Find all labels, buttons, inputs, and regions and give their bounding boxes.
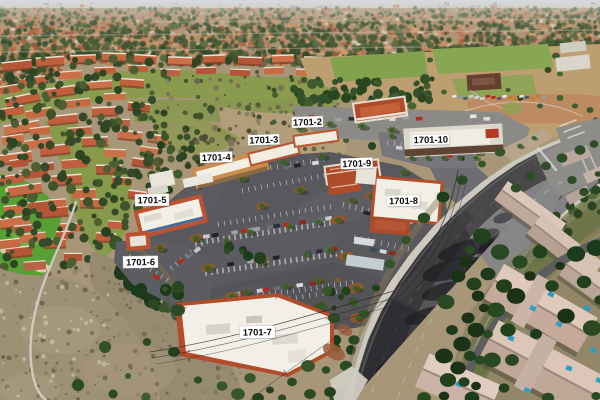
svg-text:1701-9: 1701-9: [342, 158, 371, 169]
svg-text:1701-4: 1701-4: [202, 152, 232, 163]
svg-text:1701-5: 1701-5: [137, 195, 166, 206]
svg-text:1701-3: 1701-3: [249, 135, 278, 146]
svg-text:1701-8: 1701-8: [389, 196, 418, 207]
svg-text:1701-10: 1701-10: [414, 134, 449, 146]
svg-text:1701-7: 1701-7: [243, 327, 272, 338]
svg-text:1701-2: 1701-2: [293, 117, 322, 128]
svg-text:1701-6: 1701-6: [126, 257, 155, 268]
